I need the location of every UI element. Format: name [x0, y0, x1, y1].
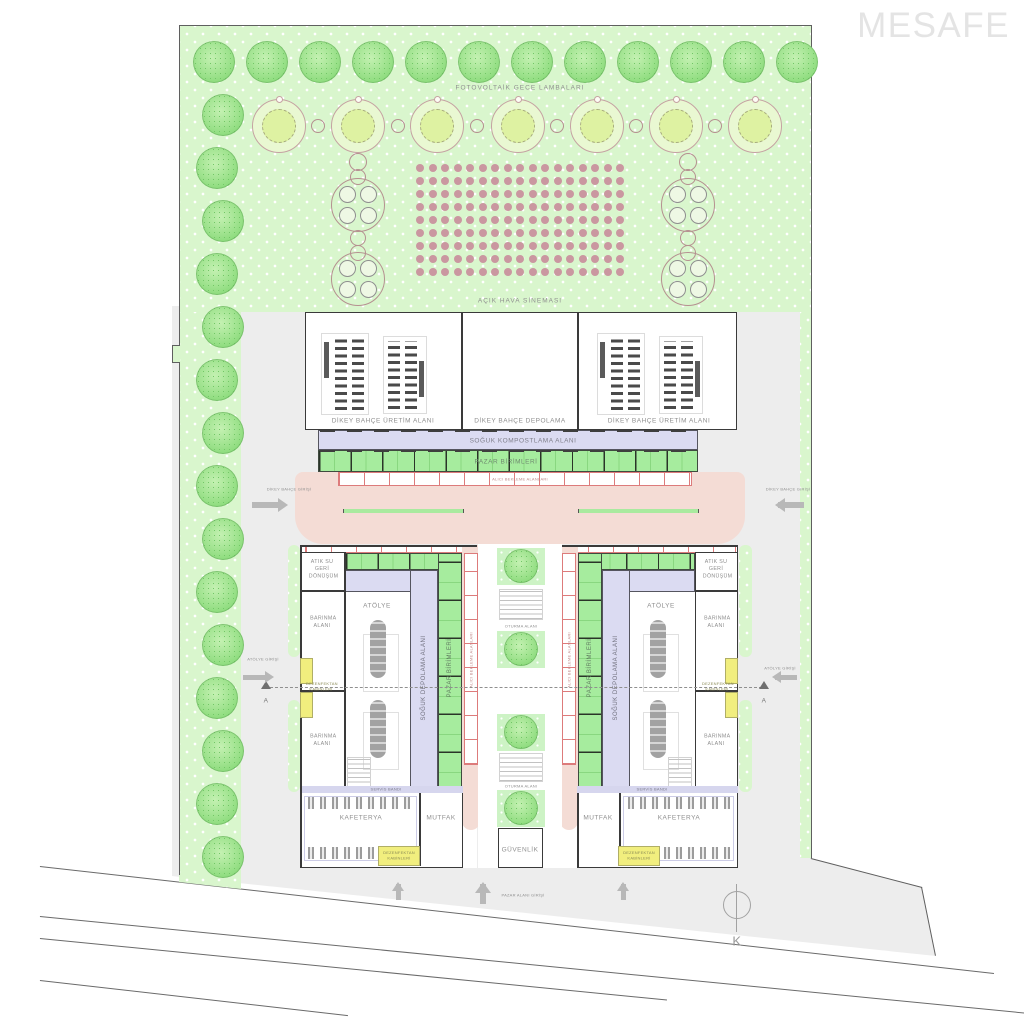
cinema-dot	[441, 177, 449, 185]
cinema-dot	[566, 164, 574, 172]
tree-icon	[202, 306, 244, 348]
tree-icon	[504, 632, 538, 666]
cinema-dot	[454, 229, 462, 237]
cinema-dot	[416, 229, 424, 237]
cinema-dot	[466, 203, 474, 211]
cinema-dot	[616, 216, 624, 224]
cinema-dot	[529, 216, 537, 224]
plaza-stairs	[499, 753, 543, 782]
shelter-label: BARINMA ALANI	[704, 615, 728, 629]
section-letter: A	[762, 698, 767, 705]
tree-icon	[504, 549, 538, 583]
cinema-dot	[516, 216, 524, 224]
cinema-dot	[516, 190, 524, 198]
shelter-label: BARINMA ALANI	[310, 733, 334, 747]
cinema-dot	[504, 203, 512, 211]
cinema-dot	[604, 177, 612, 185]
waste-water-label: ATIK SU GERİ DÖNÜŞÜM	[703, 558, 729, 579]
cinema-dot	[579, 255, 587, 263]
cinema-dot	[591, 229, 599, 237]
market-band-label: PAZAR BİRİMLERİ	[474, 459, 537, 466]
kitchen-label: MUTFAK	[426, 815, 455, 822]
waiting-band-label: ALICI BEKLEME ALANLARI	[492, 477, 548, 482]
tree-icon	[202, 730, 244, 772]
cafeteria-label: KAFETERYA	[340, 815, 383, 822]
tree-icon	[202, 94, 244, 136]
section-line	[270, 687, 762, 688]
cafeteria-tables	[308, 797, 412, 809]
hall-divider	[577, 312, 579, 430]
market-units-label: PAZAR BİRİMLERİ	[447, 639, 453, 698]
cinema-dot	[591, 190, 599, 198]
cinema-dot	[554, 164, 562, 172]
cinema-dot	[529, 190, 537, 198]
tree-icon	[617, 41, 659, 83]
wall	[577, 793, 579, 868]
wall	[577, 867, 738, 869]
cinema-dot	[429, 177, 437, 185]
cinema-dot	[516, 255, 524, 263]
cinema-dot	[504, 242, 512, 250]
cinema-dot	[454, 203, 462, 211]
cinema-dot	[454, 255, 462, 263]
cinema-dot	[454, 242, 462, 250]
cinema-dot	[566, 216, 574, 224]
cinema-dot	[491, 229, 499, 237]
cinema-dot	[454, 190, 462, 198]
seating-link-icon	[680, 230, 696, 246]
tree-icon	[776, 41, 818, 83]
stairs	[347, 757, 371, 788]
seating-link-icon	[350, 230, 366, 246]
entrance-arrow-icon	[252, 502, 278, 508]
site-plan-canvas: FOTOVOLTAİK GECE LAMBALARI AÇIK HAVA SİN…	[0, 0, 1024, 1024]
cinema-dot	[566, 203, 574, 211]
cinema-dot	[541, 268, 549, 276]
cinema-dot	[479, 255, 487, 263]
tree-icon	[504, 715, 538, 749]
service-band-label: SERVİS BANDI	[371, 787, 402, 792]
workshop-label: ATÖLYE	[647, 603, 675, 610]
compost-label: SOĞUK KOMPOSTLAMA ALANI	[470, 438, 577, 445]
plaza-tree-square	[497, 790, 545, 827]
cinema-dot	[504, 164, 512, 172]
wall	[695, 590, 738, 592]
cinema-dot	[541, 242, 549, 250]
cinema-dot	[479, 203, 487, 211]
workshop-label: ATÖLYE	[363, 603, 391, 610]
cafeteria-tables	[664, 847, 732, 859]
hall-label-left: DİKEY BAHÇE ÜRETİM ALANI	[332, 418, 435, 425]
cinema-dot	[516, 229, 524, 237]
wall	[462, 793, 464, 868]
stall-divider-line	[320, 430, 696, 432]
cinema-dot	[466, 190, 474, 198]
wall	[300, 867, 463, 869]
tree-icon	[511, 41, 553, 83]
garden-entrance-label-right: DİKEY BAHÇE GİRİŞİ	[766, 487, 810, 492]
section-letter: A	[264, 698, 269, 705]
cinema-dot	[429, 268, 437, 276]
cafeteria-tables	[628, 797, 732, 809]
cinema-dot	[554, 268, 562, 276]
tree-icon	[670, 41, 712, 83]
lamp-link-icon	[311, 119, 325, 133]
cinema-dot	[491, 242, 499, 250]
wall	[560, 545, 738, 547]
cinema-dot	[579, 164, 587, 172]
cinema-dot	[541, 177, 549, 185]
cinema-dot	[554, 229, 562, 237]
north-arrow-line	[736, 884, 737, 932]
cinema-dot	[591, 268, 599, 276]
cinema-dot	[541, 164, 549, 172]
cinema-dot	[479, 268, 487, 276]
wall	[300, 590, 345, 592]
tree-icon	[196, 253, 238, 295]
cinema-dot	[466, 229, 474, 237]
cinema-dot	[429, 203, 437, 211]
cinema-dot	[441, 190, 449, 198]
cinema-dot	[416, 242, 424, 250]
cinema-dot	[516, 177, 524, 185]
cinema-dot	[454, 216, 462, 224]
cinema-dot	[429, 190, 437, 198]
ramp-lift	[370, 620, 386, 678]
waste-water-label: ATIK SU GERİ DÖNÜŞÜM	[309, 558, 335, 579]
tree-icon	[196, 677, 238, 719]
seating-cluster-icon	[331, 252, 385, 306]
workshop-entrance-label-left: ATÖLYE GİRİŞİ	[247, 657, 279, 662]
tree-icon	[352, 41, 394, 83]
cinema-dot	[554, 242, 562, 250]
service-band-label: SERVİS BANDI	[637, 787, 668, 792]
cold-storage-label: SOĞUK DEPOLAMA ALANI	[613, 635, 619, 720]
cinema-dot	[454, 268, 462, 276]
cinema-dot	[441, 229, 449, 237]
ramp-lift	[650, 620, 666, 678]
cinema-dot	[466, 255, 474, 263]
cinema-dot	[541, 216, 549, 224]
bench	[578, 509, 699, 513]
vertical-farm-rack	[597, 333, 645, 415]
cinema-dot	[541, 229, 549, 237]
cinema-dot	[591, 255, 599, 263]
wall	[300, 545, 477, 547]
stairs	[668, 757, 692, 788]
cinema-dot	[441, 242, 449, 250]
gate-arrow-head	[392, 876, 404, 891]
cinema-dot	[454, 177, 462, 185]
cinema-dot	[491, 203, 499, 211]
cinema-dot	[554, 216, 562, 224]
tree-icon	[202, 624, 244, 666]
seating-cluster-icon	[331, 178, 385, 232]
tree-icon	[246, 41, 288, 83]
seating-label-lower: OTURMA ALANI	[505, 784, 538, 789]
cinema-dot	[466, 177, 474, 185]
cinema-dot	[591, 203, 599, 211]
cinema-dot	[441, 164, 449, 172]
lamp-link-icon	[708, 119, 722, 133]
entrance-arrow-icon	[243, 675, 265, 680]
seating-label-upper: OTURMA ALANI	[505, 624, 538, 629]
tree-icon	[458, 41, 500, 83]
cinema-dot	[491, 190, 499, 198]
lamp-link-icon	[629, 119, 643, 133]
wall	[300, 552, 345, 553]
cinema-dot	[504, 177, 512, 185]
bench	[343, 509, 464, 513]
plaza-tree-square	[497, 548, 545, 585]
cold-storage-label: SOĞUK DEPOLAMA ALANI	[421, 635, 427, 720]
disinfection-booths	[725, 658, 738, 684]
cinema-dot	[416, 177, 424, 185]
cinema-dot	[441, 255, 449, 263]
cinema-dot	[529, 177, 537, 185]
cinema-dot	[516, 164, 524, 172]
cinema-dot	[604, 164, 612, 172]
gate-arrow-head	[617, 876, 629, 891]
cinema-dot	[429, 164, 437, 172]
cinema-dot	[566, 229, 574, 237]
cinema-dot	[416, 216, 424, 224]
cinema-dot	[604, 203, 612, 211]
cinema-dot	[566, 190, 574, 198]
cinema-dot	[466, 242, 474, 250]
cinema-dot	[529, 255, 537, 263]
tree-icon	[196, 359, 238, 401]
tree-icon	[299, 41, 341, 83]
pv-lamp-icon	[728, 99, 782, 153]
cinema-dot	[441, 216, 449, 224]
cinema-dot	[479, 164, 487, 172]
cinema-dot	[491, 164, 499, 172]
cinema-dot	[579, 190, 587, 198]
cinema-dot	[591, 177, 599, 185]
tree-icon	[202, 518, 244, 560]
pv-lamp-icon	[410, 99, 464, 153]
cinema-dot	[541, 203, 549, 211]
plaza-stairs	[499, 589, 543, 620]
cinema-dot	[579, 216, 587, 224]
cinema-dot	[491, 177, 499, 185]
cinema-dot	[416, 268, 424, 276]
hall-label-center: DİKEY BAHÇE DEPOLAMA	[474, 418, 566, 425]
disinfection-booths	[300, 658, 313, 684]
tree-icon	[193, 41, 235, 83]
tree-icon	[196, 147, 238, 189]
cinema-dot	[529, 164, 537, 172]
tree-icon	[202, 412, 244, 454]
ramp-lift	[650, 700, 666, 758]
cinema-dot	[466, 268, 474, 276]
cinema-dot	[529, 242, 537, 250]
cinema-dot	[479, 177, 487, 185]
cafeteria-tables	[308, 847, 376, 859]
tree-icon	[196, 783, 238, 825]
cinema-dot	[566, 255, 574, 263]
cinema-dot	[541, 255, 549, 263]
cinema-dot	[604, 268, 612, 276]
seating-cluster-icon	[661, 178, 715, 232]
north-letter: K	[732, 934, 741, 949]
tree-icon	[202, 836, 244, 878]
cinema-dot	[441, 268, 449, 276]
cinema-dot	[416, 203, 424, 211]
cafeteria-label: KAFETERYA	[658, 815, 701, 822]
cinema-dot	[479, 229, 487, 237]
tree-icon	[196, 465, 238, 507]
cinema-dot	[429, 242, 437, 250]
entrance-arrow-head	[768, 498, 785, 512]
cinema-dot	[604, 216, 612, 224]
cinema-dot	[479, 242, 487, 250]
cinema-dot	[491, 268, 499, 276]
vertical-farm-rack	[659, 336, 703, 414]
wall	[695, 552, 738, 553]
pv-lamp-icon	[491, 99, 545, 153]
cinema-dot	[554, 177, 562, 185]
cinema-dot	[441, 203, 449, 211]
cinema-dot	[604, 229, 612, 237]
cinema-dot	[579, 268, 587, 276]
cinema-dot	[554, 255, 562, 263]
cinema-dot	[541, 190, 549, 198]
cinema-dot	[429, 216, 437, 224]
lamp-link-icon	[550, 119, 564, 133]
waiting-v-label: ALICI BEKLEME ALANLARI	[567, 632, 572, 688]
cinema-dot	[591, 216, 599, 224]
cinema-dot	[529, 268, 537, 276]
cinema-dot	[604, 190, 612, 198]
security-label: GÜVENLİK	[502, 847, 539, 854]
cinema-dot	[579, 203, 587, 211]
market-gate-label: PAZAR ALANI GİRİŞİ	[501, 893, 544, 898]
tree-icon	[196, 571, 238, 613]
kitchen-label: MUTFAK	[583, 815, 612, 822]
pv-lamp-icon	[331, 99, 385, 153]
seating-cluster-icon	[661, 252, 715, 306]
workshop-entrance-label-right: ATÖLYE GİRİŞİ	[764, 666, 796, 671]
cinema-dot	[529, 229, 537, 237]
pv-lamp-icon	[649, 99, 703, 153]
cinema-dot	[491, 255, 499, 263]
cinema-dot	[616, 268, 624, 276]
entrance-arrow-head	[766, 671, 781, 683]
cinema-dot	[616, 203, 624, 211]
cinema-dot	[579, 229, 587, 237]
cinema-dot	[554, 190, 562, 198]
lamp-link-icon	[391, 119, 405, 133]
disinfection-booths	[300, 692, 313, 718]
cinema-dot	[616, 255, 624, 263]
cinema-dot	[466, 164, 474, 172]
cinema-dot	[516, 242, 524, 250]
cinema-dot	[566, 177, 574, 185]
cinema-dot	[504, 229, 512, 237]
ramp-lift	[370, 700, 386, 758]
entrance-arrow-head	[278, 498, 295, 512]
cinema-dot	[454, 164, 462, 172]
cinema-dot	[579, 177, 587, 185]
hall-divider	[461, 312, 463, 430]
hall-label-right: DİKEY BAHÇE ÜRETİM ALANI	[608, 418, 711, 425]
cinema-dot	[516, 203, 524, 211]
disinfection-booths	[725, 692, 738, 718]
shelter-label: BARINMA ALANI	[310, 615, 334, 629]
cinema-dot	[616, 190, 624, 198]
cinema-dot	[529, 203, 537, 211]
tree-icon	[504, 791, 538, 825]
cinema-dot	[429, 255, 437, 263]
market-units-label: PAZAR BİRİMLERİ	[587, 639, 593, 698]
cinema-dot	[591, 164, 599, 172]
plaza-tree-square	[497, 714, 545, 751]
stall-divider-line	[320, 450, 696, 452]
cinema-dot	[566, 242, 574, 250]
waiting-v-label: ALICI BEKLEME ALANLARI	[469, 632, 474, 688]
cinema-dot	[466, 216, 474, 224]
cinema-dot	[616, 229, 624, 237]
cinema-dot	[566, 268, 574, 276]
tree-icon	[564, 41, 606, 83]
cinema-dot	[604, 242, 612, 250]
cinema-dot	[591, 242, 599, 250]
cinema-dot	[429, 229, 437, 237]
wall	[344, 552, 346, 792]
vertical-farm-rack	[321, 333, 369, 415]
project-title-watermark: MESAFE	[857, 6, 1010, 46]
tree-icon	[405, 41, 447, 83]
cinema-dot	[416, 255, 424, 263]
cinema-dot	[504, 268, 512, 276]
wall	[695, 552, 697, 792]
cinema-dot	[479, 216, 487, 224]
shelter-label: BARINMA ALANI	[704, 733, 728, 747]
pv-lamp-icon	[570, 99, 624, 153]
cinema-dot	[516, 268, 524, 276]
cinema-dot	[416, 164, 424, 172]
pv-lamp-icon	[252, 99, 306, 153]
cinema-dot	[579, 242, 587, 250]
cinema-dot	[416, 190, 424, 198]
cinema-dot	[491, 216, 499, 224]
cinema-dot	[504, 255, 512, 263]
plaza-tree-square	[497, 631, 545, 668]
lamp-link-icon	[470, 119, 484, 133]
garden-entrance-label-left: DİKEY BAHÇE GİRİŞİ	[267, 487, 311, 492]
cinema-dot	[616, 242, 624, 250]
cinema-dot	[616, 177, 624, 185]
entrance-arrow-head	[265, 671, 280, 683]
disinfection-label: DEZENFEKTAN KABİNLERİ	[382, 851, 416, 862]
cinema-dot	[616, 164, 624, 172]
tree-icon	[202, 200, 244, 242]
cinema-dot	[504, 190, 512, 198]
cinema-dot	[479, 190, 487, 198]
tree-icon	[723, 41, 765, 83]
vertical-farm-rack	[383, 336, 427, 414]
cinema-dot	[504, 216, 512, 224]
cinema-dot	[604, 255, 612, 263]
cinema-dot	[554, 203, 562, 211]
gate-arrow-head	[475, 874, 491, 893]
disinfection-label: DEZENFEKTAN KABİNLERİ	[622, 851, 656, 862]
